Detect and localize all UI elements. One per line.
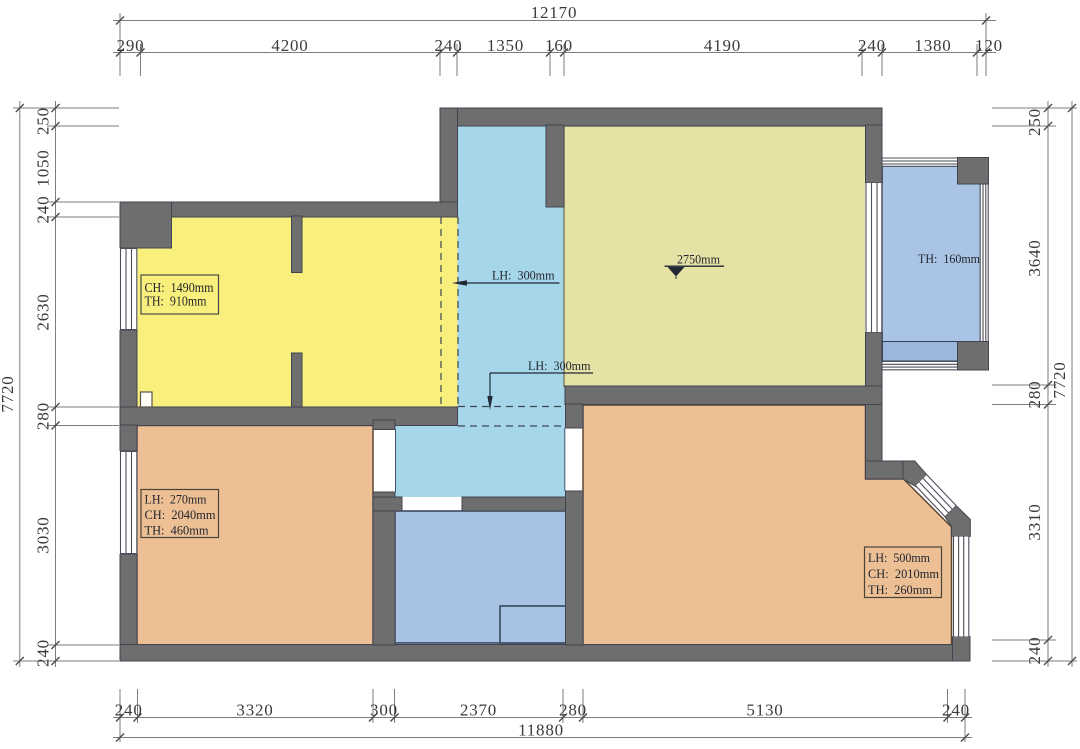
- svg-text:280: 280: [34, 402, 53, 430]
- svg-text:1050: 1050: [34, 149, 53, 186]
- svg-text:3030: 3030: [34, 516, 53, 553]
- svg-text:11880: 11880: [518, 721, 564, 740]
- svg-text:TH: 910mm: TH: 910mm: [145, 294, 207, 309]
- svg-text:TH: 460mm: TH: 460mm: [145, 524, 209, 538]
- svg-text:250: 250: [34, 107, 53, 135]
- svg-text:12170: 12170: [531, 3, 578, 22]
- svg-text:240: 240: [115, 701, 143, 720]
- svg-text:240: 240: [858, 36, 886, 55]
- svg-text:1380: 1380: [914, 36, 951, 55]
- svg-text:280: 280: [1025, 381, 1044, 409]
- svg-text:3640: 3640: [1025, 239, 1044, 276]
- svg-text:4190: 4190: [704, 36, 741, 55]
- svg-text:TH: 160mm: TH: 160mm: [918, 252, 980, 266]
- svg-text:5130: 5130: [746, 701, 783, 720]
- svg-text:240: 240: [435, 36, 463, 55]
- svg-text:LH: 300mm: LH: 300mm: [492, 269, 555, 283]
- svg-text:250: 250: [1025, 108, 1044, 136]
- svg-text:2370: 2370: [460, 701, 497, 720]
- svg-text:1350: 1350: [487, 36, 524, 55]
- svg-text:2630: 2630: [34, 293, 53, 330]
- svg-text:LH: 300mm: LH: 300mm: [528, 359, 591, 373]
- svg-text:240: 240: [34, 639, 53, 667]
- svg-text:7720: 7720: [0, 375, 17, 412]
- svg-text:240: 240: [1025, 637, 1044, 665]
- svg-text:2750mm: 2750mm: [677, 253, 720, 267]
- svg-text:LH: 500mm: LH: 500mm: [868, 551, 930, 565]
- svg-text:LH: 270mm: LH: 270mm: [145, 493, 207, 507]
- svg-text:160: 160: [545, 36, 573, 55]
- svg-text:7720: 7720: [1050, 361, 1069, 398]
- svg-text:CH: 2010mm: CH: 2010mm: [868, 567, 939, 581]
- svg-text:3320: 3320: [236, 701, 273, 720]
- svg-text:280: 280: [559, 701, 587, 720]
- svg-text:240: 240: [942, 701, 970, 720]
- svg-text:TH: 260mm: TH: 260mm: [868, 583, 932, 597]
- svg-text:240: 240: [34, 196, 53, 224]
- svg-text:4200: 4200: [271, 36, 308, 55]
- svg-text:290: 290: [117, 36, 145, 55]
- svg-text:300: 300: [370, 701, 398, 720]
- svg-text:CH: 2040mm: CH: 2040mm: [145, 508, 216, 522]
- svg-text:120: 120: [975, 36, 1003, 55]
- svg-text:3310: 3310: [1025, 503, 1044, 540]
